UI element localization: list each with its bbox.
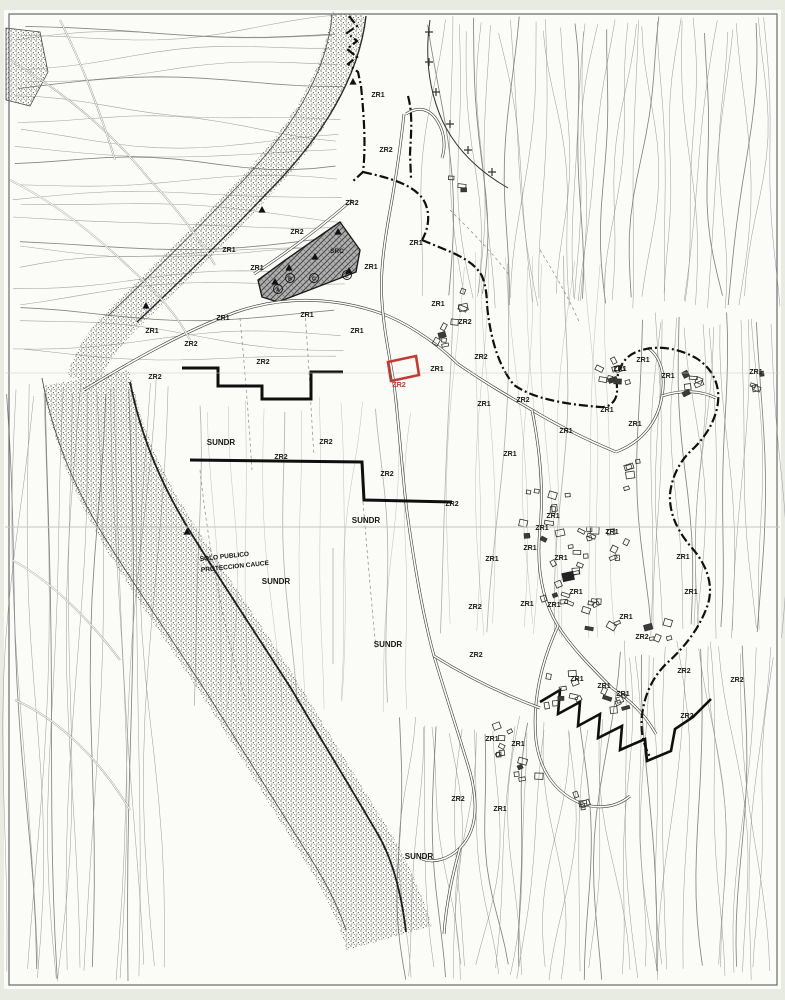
zone-label: ZR1 bbox=[523, 545, 536, 552]
highlight-parcel-label: ZR2 bbox=[392, 380, 406, 389]
zone-label: ZR2 bbox=[677, 668, 690, 675]
svg-text:A: A bbox=[276, 288, 280, 294]
zone-label: ZR2 bbox=[290, 229, 303, 236]
zone-label: ZR1 bbox=[364, 264, 377, 271]
zone-label: ZR2 bbox=[458, 319, 471, 326]
zone-label: ZR1 bbox=[636, 357, 649, 364]
zone-label: ZR1 bbox=[430, 366, 443, 373]
zone-label: ZR1 bbox=[547, 602, 560, 609]
zone-label: ZR1 bbox=[619, 614, 632, 621]
zone-label: ZR2 bbox=[730, 677, 743, 684]
zone-label: SRC bbox=[330, 248, 344, 255]
zone-label: ZR1 bbox=[145, 328, 158, 335]
zone-label: ZR2 bbox=[445, 501, 458, 508]
zone-label: SUNDR bbox=[405, 852, 434, 861]
zone-label: SUNDR bbox=[262, 577, 291, 586]
zoning-map: ZR1ZR2ZR2ZR2ZR1SRCZR1ZR1ZR1ZR1ZR1ZR1ZR1Z… bbox=[0, 0, 785, 1000]
zone-label: ZR1 bbox=[570, 676, 583, 683]
zone-label: ZR1 bbox=[431, 301, 444, 308]
zone-label: ZR1 bbox=[684, 589, 697, 596]
zone-label: ZR1 bbox=[628, 421, 641, 428]
zone-label: ZR1 bbox=[371, 92, 384, 99]
zone-label: ZR2 bbox=[380, 471, 393, 478]
zone-label: ZR2 bbox=[680, 713, 693, 720]
zone-label: ZR1 bbox=[511, 741, 524, 748]
zone-label: ZR1 bbox=[503, 451, 516, 458]
zone-label: ZR2 bbox=[256, 359, 269, 366]
zone-label: ZR1 bbox=[520, 601, 533, 608]
zone-label: ZR1 bbox=[485, 556, 498, 563]
zone-label: ZR2 bbox=[451, 796, 464, 803]
zone-label: ZR2 bbox=[469, 652, 482, 659]
zone-label: ZR1 bbox=[749, 369, 762, 376]
zone-label: ZR2 bbox=[379, 147, 392, 154]
zone-label: ZR2 bbox=[516, 397, 529, 404]
zone-label: SUNDR bbox=[352, 516, 381, 525]
zone-label: ZR2 bbox=[319, 439, 332, 446]
zone-label: ZR1 bbox=[661, 373, 674, 380]
zone-label: ZR1 bbox=[493, 806, 506, 813]
zone-label: SUNDR bbox=[207, 438, 236, 447]
svg-text:E: E bbox=[345, 274, 349, 280]
zone-label: ZR1 bbox=[546, 513, 559, 520]
zone-label: ZR1 bbox=[676, 554, 689, 561]
zone-label: ZR2 bbox=[468, 604, 481, 611]
zone-label: ZR1 bbox=[616, 691, 629, 698]
zone-label: ZR1 bbox=[597, 683, 610, 690]
zone-label: ZR1 bbox=[613, 366, 626, 373]
zone-label: ZR1 bbox=[300, 312, 313, 319]
zone-label: ZR1 bbox=[222, 247, 235, 254]
zone-label: ZR1 bbox=[409, 240, 422, 247]
zone-label: ZR1 bbox=[569, 589, 582, 596]
zone-label: ZR2 bbox=[274, 454, 287, 461]
zone-label: ZR1 bbox=[477, 401, 490, 408]
zone-label: ZR1 bbox=[485, 736, 498, 743]
zone-label: ZR1 bbox=[559, 428, 572, 435]
zone-label: ZR1 bbox=[250, 265, 263, 272]
zone-label: ZR2 bbox=[148, 374, 161, 381]
zone-label: ZR2 bbox=[635, 634, 648, 641]
scanned-zoning-map-page: ZR1ZR2ZR2ZR2ZR1SRCZR1ZR1ZR1ZR1ZR1ZR1ZR1Z… bbox=[0, 0, 785, 1000]
zone-label: ZR2 bbox=[474, 354, 487, 361]
svg-text:C: C bbox=[312, 277, 316, 283]
zone-label: ZR1 bbox=[554, 555, 567, 562]
zone-label: ZR1 bbox=[605, 529, 618, 536]
zone-label: ZR2 bbox=[184, 341, 197, 348]
zone-label: ZR1 bbox=[600, 407, 613, 414]
zone-label: ZR1 bbox=[216, 315, 229, 322]
zone-label: ZR2 bbox=[345, 200, 358, 207]
svg-text:B: B bbox=[288, 277, 292, 283]
zone-label: ZR1 bbox=[350, 328, 363, 335]
zone-label: ZR1 bbox=[535, 525, 548, 532]
zone-label: SUNDR bbox=[374, 640, 403, 649]
